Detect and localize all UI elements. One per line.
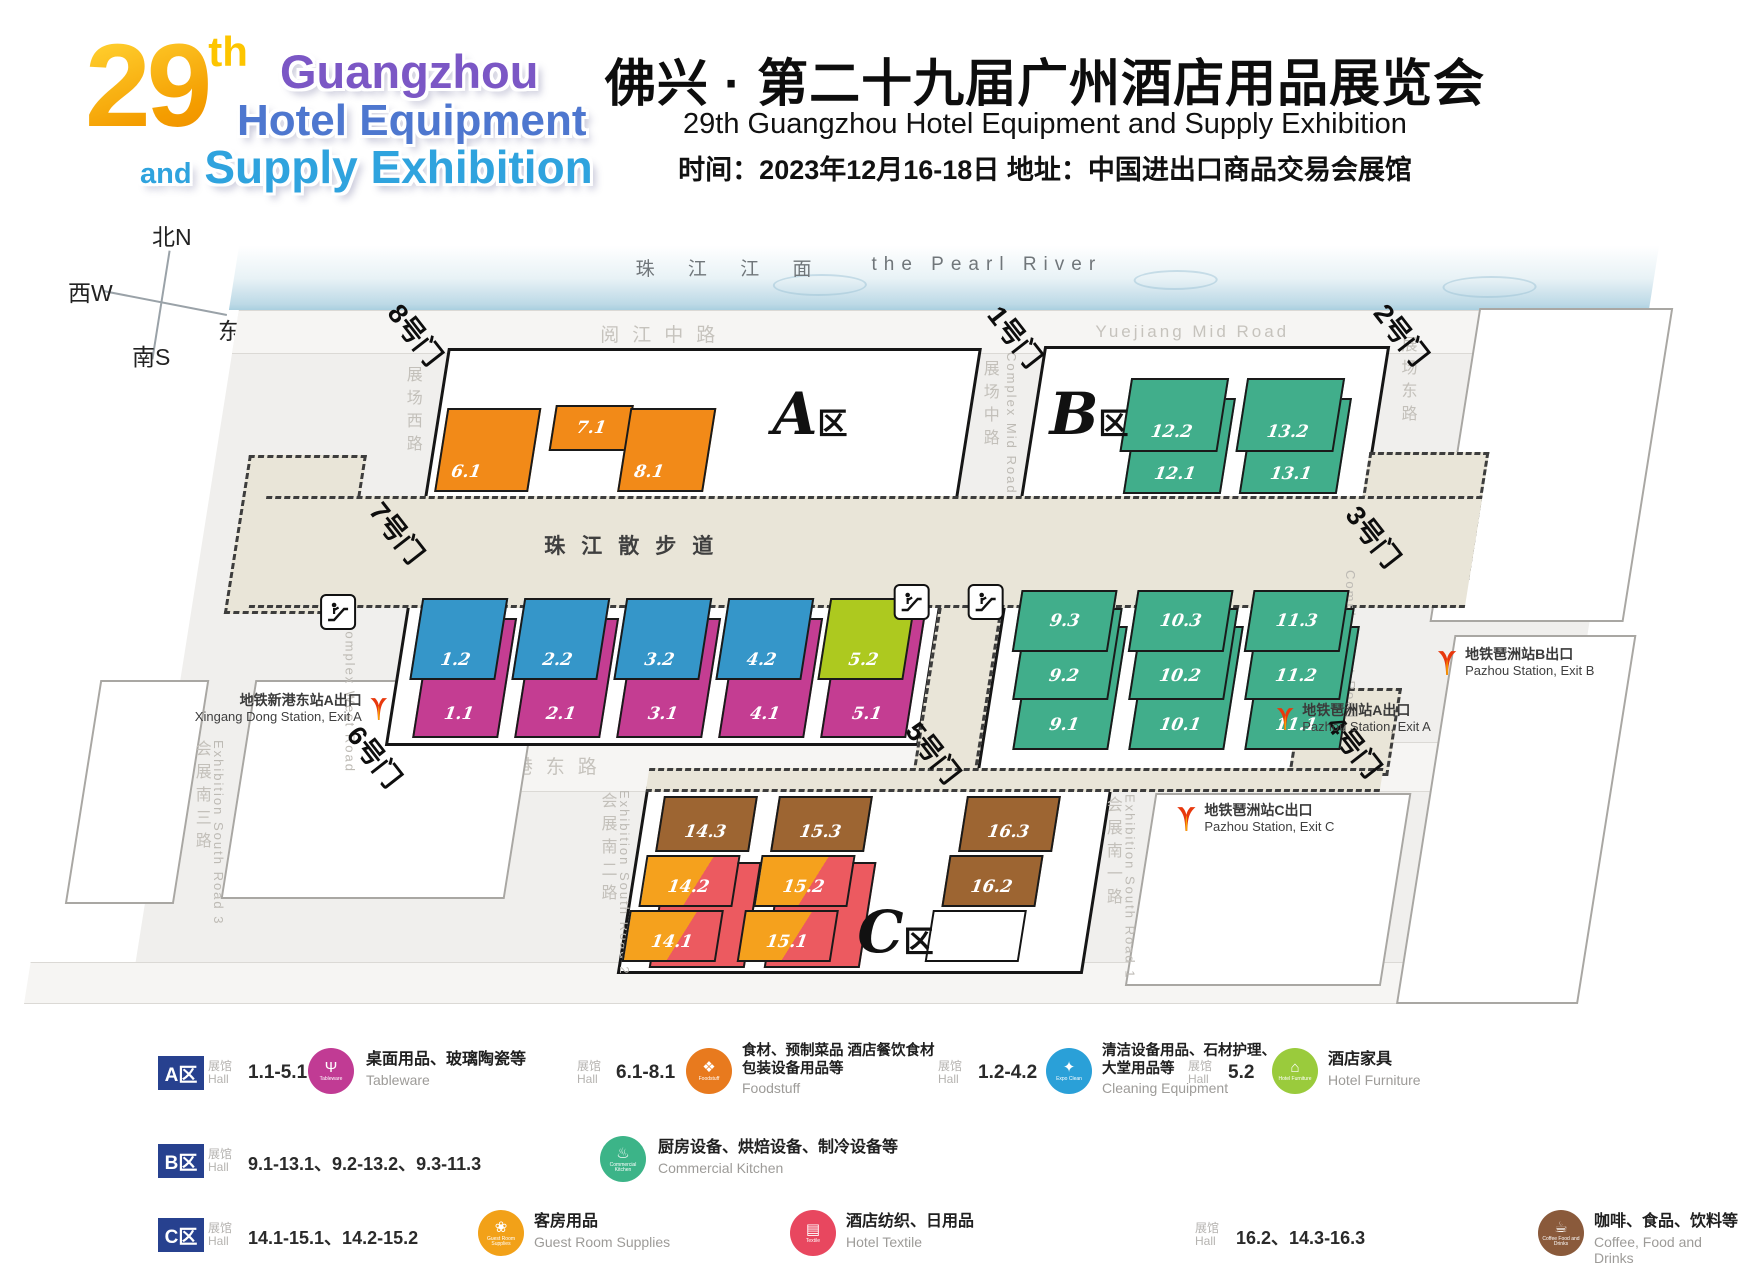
legend-item-furniture: 酒店家具Hotel Furniture	[1328, 1050, 1421, 1088]
exhibition-map: 珠 江 江 面 the Pearl River 阅江中路 Yuejiang Mi…	[128, 240, 1645, 1040]
legend-hall-label: 展馆Hall	[208, 1060, 232, 1086]
legend-item-textile: 酒店纺织、日用品Hotel Textile	[846, 1212, 974, 1250]
legend-badge-b: B区	[158, 1144, 204, 1178]
hotel-textile-icon: ▤Textile	[790, 1210, 836, 1256]
metro-icon	[1175, 806, 1197, 832]
hotel-furniture-icon: ⌂Hotel Furniture	[1272, 1048, 1318, 1094]
compass: 北N 西W 东E 南S	[60, 210, 260, 370]
compass-we-line	[103, 290, 227, 316]
hall-15.1: 15.1	[737, 910, 839, 962]
hall-12.2: 12.2	[1119, 378, 1229, 452]
hall-14.3: 14.3	[655, 796, 758, 852]
guest-room-icon: ❀Guest Room Supplies	[478, 1210, 524, 1256]
hall-13.2: 13.2	[1235, 378, 1345, 452]
station-pazhou-exit-b: 地铁琶洲站B出口Pazhou Station, Exit B	[1436, 646, 1594, 679]
hall-9.3: 9.3	[1012, 590, 1118, 652]
hall-11.3: 11.3	[1244, 590, 1350, 652]
river-ripple	[1441, 276, 1538, 298]
legend-hall-label: 展馆Hall	[1188, 1060, 1212, 1086]
legend-range-coffee: 16.2、14.3-16.3	[1236, 1224, 1365, 1250]
legend-hall-label: 展馆Hall	[208, 1222, 232, 1248]
legend-range-guest: 14.1-15.1、14.2-15.2	[248, 1224, 418, 1250]
hall-16.2: 16.2	[941, 855, 1043, 907]
station-pazhou-exit-c: 地铁琶洲站C出口Pazhou Station, Exit C	[1175, 802, 1334, 835]
station-xingang-dong-exit-a: 地铁新港东站A出口Xingang Dong Station, Exit A	[195, 692, 389, 725]
yuejiang-road-label-cn: 阅江中路	[600, 320, 728, 347]
hall-15.2: 15.2	[753, 855, 855, 907]
compass-west: 西W	[68, 274, 113, 308]
escalator-icon	[320, 594, 356, 630]
logo-line2: Hotel Equipment	[237, 96, 587, 146]
expo-clean-icon: ✦Expo Clean	[1046, 1048, 1092, 1094]
event-info: 时间：2023年12月16-18日 地址：中国进出口商品交易会展馆	[540, 148, 1550, 187]
yuejiang-road-label-en: Yuejiang Mid Road	[1095, 322, 1289, 342]
area-a-label: A区	[772, 380, 847, 448]
south-road3-label-cn: 会展南三路	[189, 740, 213, 855]
complex-west-road-label-cn: 展场西路	[400, 366, 424, 458]
metro-icon	[369, 697, 389, 721]
legend-hall-label: 展馆Hall	[1195, 1222, 1219, 1248]
legend-hall-label: 展馆Hall	[208, 1148, 232, 1174]
south-road3-label-en: Exhibition South Road 3	[211, 740, 226, 925]
commercial-kitchen-icon: ♨Commercial Kitchen	[600, 1136, 646, 1182]
river-ripple	[1132, 270, 1219, 290]
hall-unlabeled	[925, 910, 1027, 962]
south-road1-label-en: Exhibition South Road 1	[1123, 794, 1138, 979]
legend-item-kitchen: 厨房设备、烘焙设备、制冷设备等Commercial Kitchen	[658, 1138, 898, 1176]
legend-range-clean: 1.2-4.2	[978, 1062, 1037, 1084]
hall-8.1: 8.1	[617, 408, 716, 492]
escalator-icon	[968, 584, 1004, 620]
metro-icon	[1275, 707, 1295, 731]
logo-line1: Guangzhou	[280, 44, 538, 99]
logo-29: 29th	[85, 18, 248, 154]
legend-hall-label: 展馆Hall	[938, 1060, 962, 1086]
legend-range-foodstuff: 6.1-8.1	[616, 1062, 675, 1084]
hall-4.2: 4.2	[715, 598, 814, 680]
page-title: 佛兴 · 第二十九届广州酒店用品展览会	[540, 42, 1550, 116]
legend: A区 展馆Hall 1.1-5.1 ΨTableware 桌面用品、玻璃陶瓷等T…	[0, 1040, 1738, 1280]
escalator-icon	[894, 584, 930, 620]
pearl-river: 珠 江 江 面 the Pearl River	[229, 240, 1660, 310]
legend-item-guest: 客房用品Guest Room Supplies	[534, 1212, 670, 1250]
south-road2-label-cn: 会展南二路	[594, 792, 618, 907]
foodstuff-icon: ❖Foodstuff	[686, 1048, 732, 1094]
hall-6.1: 6.1	[434, 408, 541, 492]
legend-item-tableware: 桌面用品、玻璃陶瓷等Tableware	[366, 1050, 526, 1088]
logo-line3: and Supply Exhibition	[140, 140, 593, 194]
complex-mid-road-label-cn: 展场中路	[977, 360, 1001, 452]
compass-south: 南S	[132, 338, 170, 372]
legend-range-kitchen: 9.1-13.1、9.2-13.2、9.3-11.3	[248, 1150, 481, 1176]
legend-badge-a: A区	[158, 1056, 204, 1090]
legend-item-foodstuff: 食材、预制菜品 酒店餐饮食材 包装设备用品等Foodstuff	[742, 1042, 935, 1096]
area-b-label: B区	[1049, 380, 1128, 448]
tableware-icon: ΨTableware	[308, 1048, 354, 1094]
hall-1.2: 1.2	[409, 598, 508, 680]
hall-15.3: 15.3	[770, 796, 873, 852]
legend-badge-c: C区	[158, 1218, 204, 1252]
legend-hall-label: 展馆Hall	[577, 1060, 601, 1086]
complex-mid-road-label-en: Complex Mid Road	[1004, 352, 1019, 495]
station-pazhou-exit-a: 地铁琶洲站A出口Pazhou Station, Exit A	[1275, 702, 1431, 735]
hall-14.2: 14.2	[638, 855, 740, 907]
page-subtitle: 29th Guangzhou Hotel Equipment and Suppl…	[540, 108, 1550, 141]
area-c-label: C区	[857, 898, 933, 966]
walkway-to-c	[646, 768, 1384, 792]
hall-7.1: 7.1	[549, 405, 634, 451]
hall-14.1: 14.1	[622, 910, 724, 962]
river-label: 珠 江 江 面 the Pearl River	[636, 254, 1103, 281]
legend-range-tableware: 1.1-5.1	[248, 1062, 307, 1084]
hall-10.3: 10.3	[1128, 590, 1234, 652]
coffee-icon: ☕Coffee Food and Drinks	[1538, 1210, 1584, 1256]
pearl-walkway-label: 珠江散步道	[507, 530, 767, 560]
compass-north: 北N	[152, 218, 192, 252]
logo: 29th Guangzhou Hotel Equipment and Suppl…	[85, 18, 555, 198]
legend-item-coffee: 咖啡、食品、饮料等Coffee, Food and Drinks	[1594, 1212, 1738, 1266]
hall-2.2: 2.2	[511, 598, 610, 680]
hall-3.2: 3.2	[613, 598, 712, 680]
hall-16.3: 16.3	[958, 796, 1061, 852]
south-road1-label-cn: 会展南一路	[1100, 796, 1124, 911]
legend-range-furniture: 5.2	[1228, 1062, 1254, 1084]
metro-icon	[1436, 650, 1458, 676]
